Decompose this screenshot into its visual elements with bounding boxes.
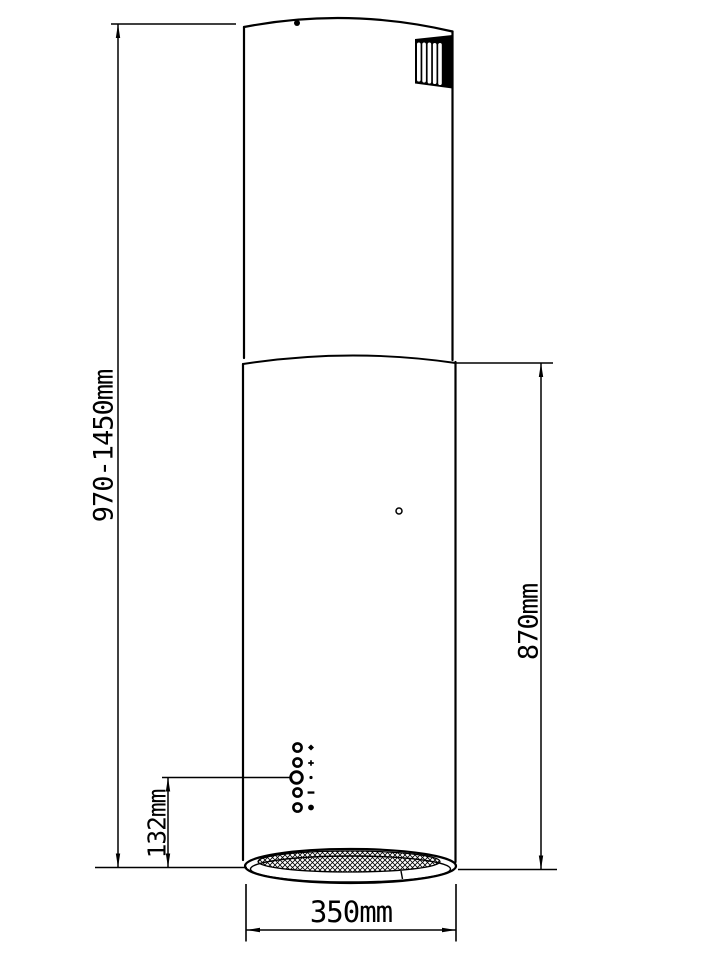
hood-body-outline (243, 18, 456, 862)
control-button-1 (293, 743, 301, 751)
control-button-4 (293, 788, 301, 796)
body-seam-edge (243, 355, 456, 364)
vent-slat (428, 43, 432, 84)
dimension-label-control-offset: 132mm (143, 789, 172, 858)
indicator-dot-icon (308, 805, 314, 811)
drawing-page: 970-1450mm 870mm 132mm 350mm (0, 0, 724, 960)
dimension-label-diameter: 350mm (310, 895, 393, 929)
exhaust-vent-grille-icon (415, 35, 453, 89)
indicator-diamond-icon (308, 745, 314, 751)
vent-slat (438, 43, 442, 85)
bottom-rim-and-filter (245, 849, 456, 883)
range-hood-dimension-drawing: 970-1450mm 870mm 132mm 350mm (0, 0, 724, 960)
indicator-small-dot-icon (309, 776, 312, 779)
dimension-body-height: 870mm (455, 363, 557, 870)
dimension-label-total-height: 970-1450mm (89, 370, 120, 523)
dimension-label-body-height: 870mm (514, 584, 545, 660)
rim-seam-tick (401, 871, 403, 879)
vent-slat (417, 43, 421, 82)
dimension-diameter: 350mm (246, 884, 456, 942)
arrowhead-left (246, 928, 260, 932)
dimension-total-height: 970-1450mm (89, 24, 248, 868)
control-button-2 (293, 758, 301, 766)
screw-hole (396, 508, 402, 514)
arrowhead-up (539, 363, 543, 377)
control-panel (291, 743, 315, 811)
arrowhead-up (166, 778, 170, 792)
arrowhead-up (116, 24, 120, 38)
arrowhead-down (539, 856, 543, 870)
grease-filter-mesh (258, 851, 440, 872)
arrowhead-down (116, 854, 120, 868)
indicator-plus-icon (308, 760, 314, 766)
indicator-minus-icon (308, 791, 315, 793)
vent-slat (422, 43, 426, 83)
control-button-3-large (291, 772, 303, 784)
dimension-control-offset: 132mm (143, 778, 291, 868)
vent-slat (433, 43, 437, 84)
mounting-dot (294, 20, 300, 26)
arrowhead-right (442, 928, 456, 932)
hood-top-edge (244, 18, 453, 31)
control-button-5 (293, 803, 301, 811)
